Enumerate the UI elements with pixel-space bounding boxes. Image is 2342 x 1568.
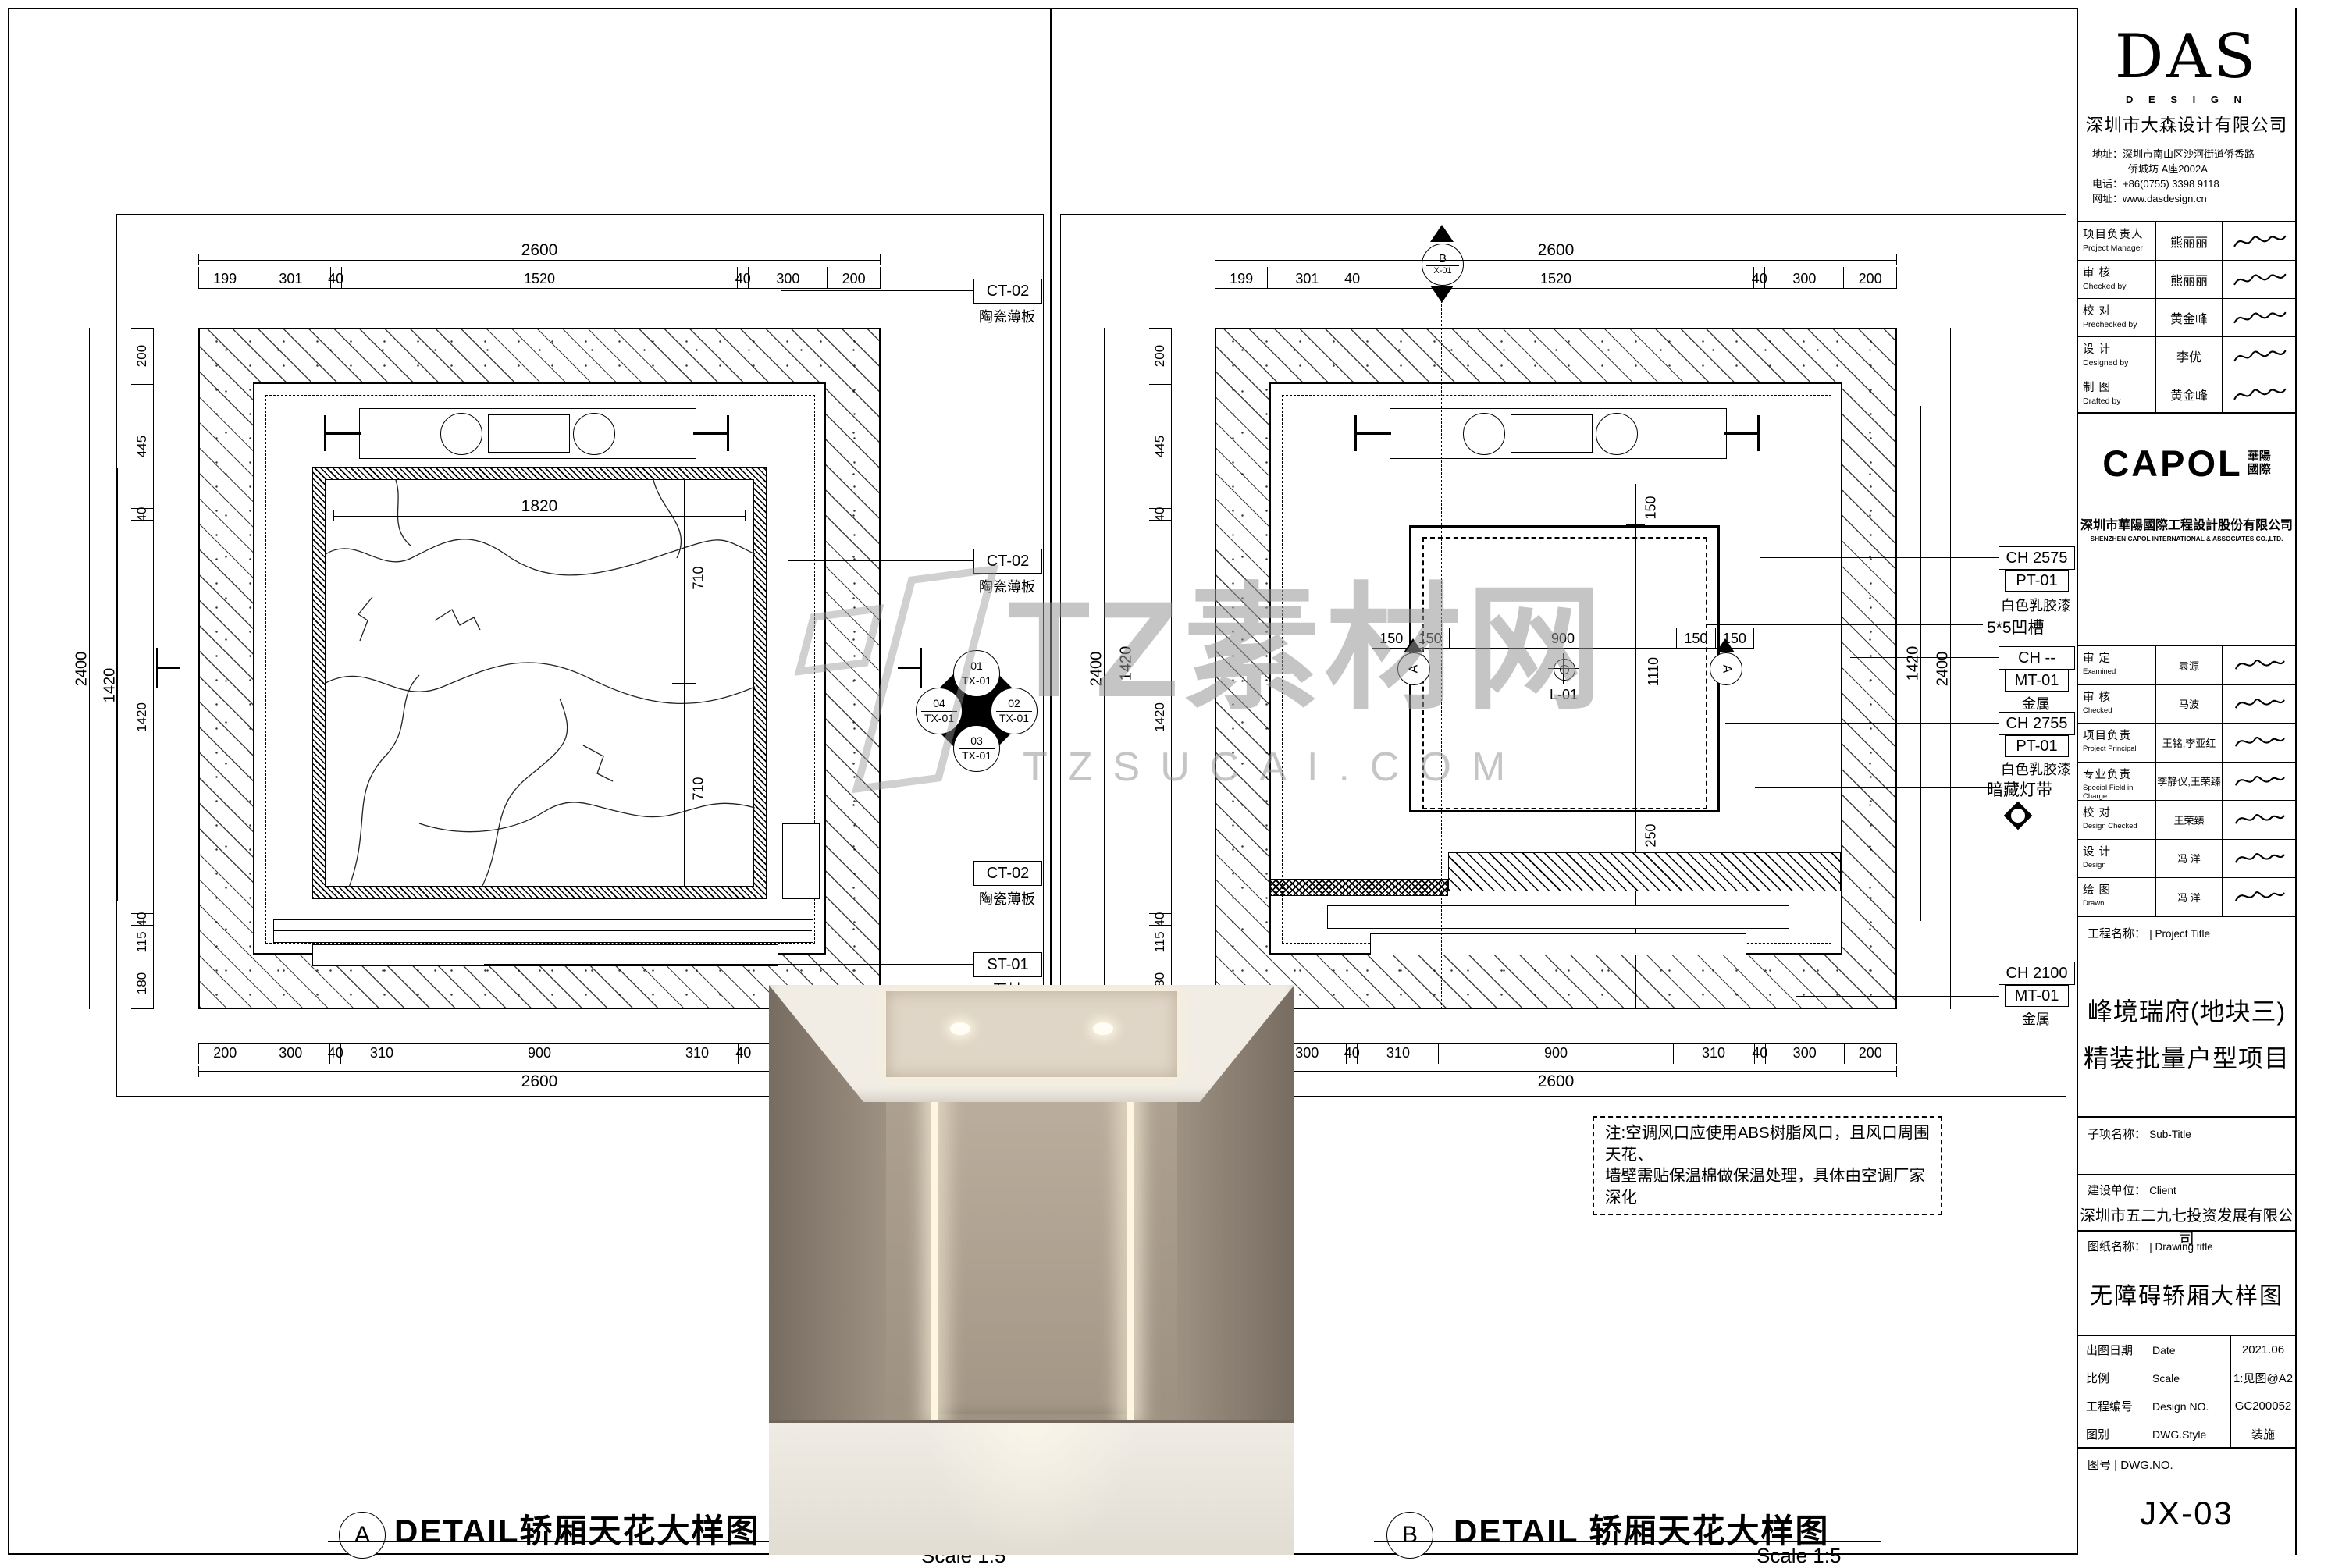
b-dim-bottom: 250: [1643, 823, 1660, 847]
signature-row: 设 计Design 冯 洋: [2078, 840, 2295, 879]
dim-cell: 301: [1267, 267, 1346, 288]
role-en: Drawn: [2083, 899, 2152, 908]
signature-table-capol: 审 定Examined 袁源 审 核Checked 马波 项目负责Project…: [2078, 646, 2295, 917]
das-logo: DAS: [2078, 22, 2295, 92]
dim-cell: 900: [422, 1044, 656, 1064]
note-line-2: 墙壁需贴保温棉做保温处理，具体由空调厂家深化: [1605, 1165, 1933, 1208]
dim-cell: 1520: [341, 267, 737, 288]
capol-logo-cn-2: 國際: [2248, 464, 2271, 477]
dim-text: 310: [1702, 1045, 1725, 1061]
tag-ch: CH 2575: [2006, 549, 2068, 567]
a-fixture-t-right: [693, 432, 728, 435]
role-cn: 设 计: [2083, 340, 2152, 357]
b-dim-overall-height-left: 2400: [1088, 328, 1105, 1009]
dim-text: 2600: [1538, 240, 1575, 260]
signature-row: 项目负责人Project Manager 熊丽丽: [2078, 222, 2295, 261]
person-name: 熊丽丽: [2156, 222, 2223, 260]
role-cn: 专业负责: [2083, 766, 2152, 782]
dim-text: 1520: [524, 271, 555, 287]
a-finish-diamond: 01TX-01 02TX-01 03TX-01 04TX-01: [917, 652, 1034, 769]
client-block: 建设单位： Client 深圳市五二九七投资发展有限公司: [2078, 1175, 2295, 1232]
elevator-photo: [769, 985, 1294, 1555]
dim-text: 150: [1379, 631, 1403, 647]
das-address-1: 地址：深圳市南山区沙河街道侨香路: [2092, 148, 2295, 162]
dim-text: 300: [279, 1045, 302, 1061]
dim-cell: 40: [737, 267, 748, 288]
role-en: Project Principal: [2083, 745, 2152, 753]
project-label-cn: 工程名称：: [2088, 927, 2146, 940]
role-en: Drafted by: [2083, 396, 2152, 406]
dim-cell: 200: [1843, 267, 1897, 288]
b-section-right-triangle: [1716, 638, 1735, 652]
person-name: 袁源: [2156, 646, 2223, 684]
dim-cell: 310: [340, 1044, 422, 1064]
meta-row: 出图日期 Date 2021.06: [2078, 1336, 2295, 1364]
b-leader-1: [1760, 557, 1999, 558]
section-letter: A: [1719, 665, 1733, 674]
tag-code: PT-01: [2016, 572, 2057, 590]
meta-label-en: Scale: [2152, 1372, 2230, 1385]
dim-text: 1420: [1118, 646, 1134, 681]
a-side-mark-left-stem: [158, 667, 180, 669]
b-leader-5: [1755, 787, 1999, 788]
meta-row: 比例 Scale 1:见图@A2: [2078, 1364, 2295, 1392]
capol-logo-cn-1: 華陽: [2248, 450, 2271, 464]
subtitle-label-cn: 子项名称：: [2088, 1128, 2146, 1141]
a-leader-2: [788, 560, 973, 561]
drawing-title-name: 无障碍轿厢大样图: [2078, 1278, 2295, 1310]
role-cn: 制 图: [2083, 379, 2152, 395]
dim-text: 1820: [521, 496, 558, 516]
dim-cell: 40: [131, 913, 153, 925]
signature-scribble: [2223, 646, 2295, 684]
signature-row: 校 对Design Checked 王荣臻: [2078, 801, 2295, 840]
b-tag-5-text: 暗藏灯带: [1987, 777, 2052, 801]
a-fixture-lamp-left: [440, 413, 482, 455]
meta-label-cn: 出图日期: [2078, 1342, 2152, 1358]
tag-ch: CH 2755: [2006, 715, 2068, 733]
title-block: DAS D E S I G N 深圳市大森设计有限公司 地址：深圳市南山区沙河街…: [2077, 8, 2297, 1555]
title-a-text: DETAIL轿厢天花大样图: [394, 1505, 760, 1552]
person-name: 冯 洋: [2156, 878, 2223, 916]
dim-cell: 445: [1149, 384, 1171, 508]
role-cn: 审 核: [2083, 688, 2152, 705]
photo-downlight-1: [950, 1022, 970, 1035]
b-tag-4-code: PT-01: [2005, 735, 2069, 757]
b-section-right-mark: A: [1710, 652, 1742, 685]
photo-light-strip-right: [1127, 1079, 1134, 1422]
photo-skirting-line: [769, 1420, 1294, 1423]
finish-num: 04: [933, 698, 945, 709]
dim-text: 1420: [101, 667, 117, 702]
b-leader-6: [1796, 996, 1999, 997]
meta-value: GC200052: [2230, 1392, 2295, 1420]
a-fixture-t-right-cap: [727, 415, 729, 451]
note-line-1: 注:空调风口应使用ABS树脂风口，且风口周围天花、: [1605, 1122, 1933, 1165]
dim-cell: 115: [1149, 925, 1171, 958]
signature-scribble: [2223, 724, 2295, 762]
signature-row: 制 图Drafted by 黄金峰: [2078, 375, 2295, 414]
client-label-cn: 建设单位：: [2088, 1184, 2146, 1197]
address-label: 地址：: [2092, 148, 2123, 160]
dim-cell: 310: [1357, 1044, 1438, 1064]
das-address-2: 侨城坊 A座2002A: [2128, 162, 2295, 177]
b-fixture-t-right-cap: [1757, 415, 1760, 451]
a-bottom-bar-1: [273, 919, 813, 943]
dim-text: 310: [370, 1045, 393, 1061]
dim-text: 1420: [1152, 702, 1168, 732]
meta-table: 出图日期 Date 2021.06 比例 Scale 1:见图@A2 工程编号 …: [2078, 1336, 2295, 1449]
role-en: Design: [2083, 861, 2152, 869]
photo-ceiling-coffer: [886, 991, 1177, 1077]
meta-label-cn: 图别: [2078, 1426, 2152, 1442]
a-fixture-center: [488, 414, 570, 453]
finish-01: 01TX-01: [953, 650, 1000, 697]
a-leader-3: [546, 873, 973, 873]
phone-value: +86(0755) 3398 9118: [2123, 178, 2219, 190]
tag-code: PT-01: [2016, 738, 2057, 756]
role-cn: 审 定: [2083, 649, 2152, 666]
b-dim-overall-top: 2600: [1215, 239, 1897, 261]
dim-cell: 40: [1149, 508, 1171, 520]
a-leader-4: [484, 964, 973, 965]
dim-cell: 300: [1764, 267, 1843, 288]
dim-cell: 199: [1215, 267, 1267, 288]
b-fixture-t-left: [1356, 432, 1391, 435]
b-downlight-inner: [1560, 665, 1569, 674]
meta-value: 1:见图@A2: [2230, 1364, 2295, 1392]
dim-text: 200: [1859, 271, 1882, 287]
dim-text: 900: [1551, 631, 1575, 647]
a-tag-4-code: ST-01: [973, 952, 1042, 977]
b-dim-chain-left: 20044540142040115180: [1149, 328, 1172, 1009]
a-dim-710-bottom: 710: [691, 777, 707, 800]
dim-text: 445: [1152, 436, 1168, 457]
signature-row: 专业负责Special Field in Charge 李静仪,王荣臻: [2078, 763, 2295, 802]
signature-row: 校 对Prechecked by 黄金峰: [2078, 299, 2295, 337]
meta-value: 2021.06: [2230, 1336, 2295, 1364]
b-bottom-bar-2: [1370, 933, 1746, 955]
dim-cell: 300: [748, 267, 827, 288]
role-en: Prechecked by: [2083, 320, 2152, 329]
finish-code: TX-01: [962, 675, 991, 687]
capol-company-en: SHENZHEN CAPOL INTERNATIONAL & ASSOCIATE…: [2078, 535, 2295, 542]
a-dim-overall-top: 2600: [198, 239, 881, 261]
person-name: 王荣臻: [2156, 801, 2223, 839]
b-fixture-lamp-right: [1596, 413, 1638, 455]
dim-text: 900: [1544, 1045, 1568, 1061]
person-name: 李优: [2156, 337, 2223, 375]
b-leader-4: [1725, 723, 1999, 724]
dim-cell: 1420: [131, 520, 153, 913]
signature-row: 项目负责Project Principal 王铭,李亚红: [2078, 724, 2295, 763]
dim-cell: 40: [329, 1044, 340, 1064]
a-tag-2-code: CT-02: [973, 549, 1042, 574]
a-tag-1-desc: 陶瓷薄板: [979, 306, 1035, 326]
a-fixture-t-left-cap: [324, 415, 326, 451]
dim-text: 310: [1386, 1045, 1410, 1061]
dim-cell: 1520: [1358, 267, 1753, 288]
role-en: Examined: [2083, 667, 2152, 676]
role-cn: 审 核: [2083, 264, 2152, 280]
a-bottom-bar-2: [312, 944, 778, 966]
a-fixture-lamp-right: [573, 413, 615, 455]
dim-text: 445: [134, 436, 150, 457]
dim-text: 900: [528, 1045, 551, 1061]
signature-scribble: [2223, 375, 2295, 413]
b-bottom-dense-band: [1269, 879, 1448, 896]
b-bottom-hatch-strip: [1448, 852, 1841, 891]
b-dim-top: 150: [1643, 496, 1660, 519]
mark-letter: B: [1402, 1522, 1418, 1548]
b-tag-1-ch: CH 2575: [1999, 546, 2075, 570]
person-name: 冯 洋: [2156, 840, 2223, 878]
dim-cell: 40: [1346, 1044, 1357, 1064]
meta-label-en: Date: [2152, 1344, 2230, 1356]
a-side-mark-right-stem: [898, 667, 920, 669]
b-dim-height: 1110: [1646, 657, 1662, 686]
person-name: 马波: [2156, 685, 2223, 724]
capol-logo: CAPOL: [2102, 442, 2243, 485]
a-dim-overall-height: 2400: [73, 328, 90, 1009]
a-dim-chain-left: 20044540142040115180: [131, 328, 154, 1009]
drawing-title-label-cn: 图纸名称：: [2088, 1240, 2146, 1253]
das-sub: D E S I G N: [2078, 94, 2295, 105]
dim-text: 2600: [521, 240, 558, 260]
dim-cell: 150: [1676, 628, 1714, 648]
dim-cell: 40: [738, 1044, 749, 1064]
dim-cell: 200: [198, 1044, 251, 1064]
finish-04: 04TX-01: [916, 688, 963, 734]
dim-text: 2400: [1088, 651, 1104, 686]
dim-cell: 1420: [1149, 520, 1171, 913]
dim-cell: 300: [1765, 1044, 1844, 1064]
title-b-scale: Scale 1:5: [1756, 1544, 1841, 1568]
b-fixture-t-left-cap: [1354, 415, 1357, 451]
b-leader-3: [1850, 657, 1999, 658]
a-bottom-bar-1-line: [273, 930, 812, 931]
role-en: Checked by: [2083, 282, 2152, 291]
dim-text: 300: [1295, 1045, 1319, 1061]
role-en: Special Field in Charge: [2083, 784, 2152, 801]
signature-scribble: [2223, 878, 2295, 916]
photo-downlight-2: [1093, 1022, 1113, 1035]
dim-cell: 199: [198, 267, 251, 288]
b-dim-inner-height-right: 1420: [1905, 406, 1921, 921]
b-tag-1-code: PT-01: [2005, 570, 2069, 592]
dim-cell: 200: [1149, 328, 1171, 384]
meta-label-cn: 工程编号: [2078, 1398, 2152, 1414]
dim-text: 301: [1295, 271, 1319, 287]
b-tag-1-desc: 白色乳胶漆: [2001, 595, 2071, 615]
dim-cell: 200: [827, 267, 881, 288]
dim-cell: 200: [131, 328, 153, 384]
b-vert-tick-2: [1626, 812, 1645, 812]
b-dim-chain-mid: 150150900150150: [1372, 628, 1754, 649]
dim-cell: 180: [131, 958, 153, 1009]
signature-row: 审 核Checked 马波: [2078, 685, 2295, 724]
signature-table-das: 项目负责人Project Manager 熊丽丽 审 核Checked by 熊…: [2078, 222, 2295, 414]
a-tag-3-desc: 陶瓷薄板: [979, 888, 1035, 908]
person-name: 李静仪,王荣臻: [2156, 763, 2223, 801]
b-fixture-lamp-left: [1463, 413, 1505, 455]
dim-text: 2400: [1934, 651, 1950, 686]
dim-text: 1420: [1905, 646, 1920, 681]
finish-code: TX-01: [999, 713, 1029, 724]
address-value: 深圳市南山区沙河街道侨香路: [2123, 148, 2255, 160]
b-section-left-mark: A: [1397, 652, 1430, 685]
dim-text: 115: [1152, 931, 1168, 952]
title-b-underline: [1374, 1541, 1881, 1542]
title-a-mark: A: [339, 1512, 386, 1559]
dim-cell: 40: [1754, 1044, 1765, 1064]
das-company: 深圳市大森设计有限公司: [2078, 112, 2295, 137]
a-panel-split-tick: [672, 683, 696, 684]
b-downlight-cross-h: [1548, 668, 1579, 669]
title-b-mark: B: [1386, 1512, 1433, 1559]
hvac-note: 注:空调风口应使用ABS树脂风口，且风口周围天花、 墙壁需贴保温棉做保温处理，具…: [1593, 1116, 1942, 1215]
b-fixture-t-right: [1724, 432, 1759, 435]
tag-code: MT-01: [2015, 672, 2059, 690]
signature-row: 审 定Examined 袁源: [2078, 646, 2295, 685]
person-name: 王铭,李亚红: [2156, 724, 2223, 762]
tag-code: CT-02: [987, 283, 1029, 300]
dim-cell: 40: [1753, 267, 1764, 288]
dim-text: 200: [213, 1045, 237, 1061]
a-tag-1-code: CT-02: [973, 279, 1042, 304]
dim-text: 300: [1792, 271, 1816, 287]
meta-label-en: DWG.Style: [2152, 1428, 2230, 1441]
b-tag-6-desc: 金属: [2022, 1008, 2050, 1029]
dim-cell: 300: [251, 1044, 329, 1064]
das-phone: 电话：+86(0755) 3398 9118: [2092, 177, 2295, 192]
b-vert-tick-1: [1626, 524, 1645, 525]
tag-ch: CH 2100: [2006, 965, 2068, 983]
photo-back-center-panel: [939, 1086, 1127, 1414]
a-leader-1: [781, 290, 973, 291]
dim-text: 2600: [521, 1072, 558, 1091]
signature-scribble: [2223, 685, 2295, 724]
meta-row: 工程编号 Design NO. GC200052: [2078, 1392, 2295, 1420]
mark-letter: A: [354, 1522, 370, 1548]
dim-text: 300: [1793, 1045, 1817, 1061]
signature-scribble: [2223, 337, 2295, 375]
b-tag-3-ch: CH --: [1999, 646, 2075, 670]
role-cn: 设 计: [2083, 843, 2152, 859]
b-leader-2: [1706, 624, 1983, 625]
dim-cell: 900: [1438, 1044, 1672, 1064]
role-cn: 校 对: [2083, 302, 2152, 318]
dim-cell: 310: [657, 1044, 738, 1064]
b-dim-overall-bottom: 2600: [1215, 1071, 1897, 1092]
signature-scribble: [2223, 801, 2295, 839]
a-panel-split-line: [684, 480, 685, 887]
b-section-centerline: [1441, 285, 1442, 1009]
dim-text: 2600: [1538, 1072, 1575, 1091]
finish-num: 01: [970, 660, 983, 672]
a-dim-710-top: 710: [691, 566, 707, 589]
signature-scribble: [2223, 299, 2295, 336]
meta-value: 装施: [2230, 1420, 2295, 1448]
marble-veins: [326, 480, 755, 887]
dim-text: 200: [134, 345, 150, 367]
dim-text: 200: [1859, 1045, 1882, 1061]
dim-text: 180: [134, 972, 150, 994]
capol-company: 深圳市華陽國際工程設計股份有限公司: [2078, 514, 2295, 533]
a-small-box: [782, 823, 820, 899]
dim-text: 301: [279, 271, 302, 287]
project-title-line-2: 精装批量户型项目: [2078, 1039, 2295, 1075]
b-downlight-label: L-01: [1550, 687, 1578, 703]
dim-text: 150: [1684, 631, 1707, 647]
meta-row: 图别 DWG.Style 装施: [2078, 1420, 2295, 1449]
das-block: DAS D E S I G N 深圳市大森设计有限公司 地址：深圳市南山区沙河街…: [2078, 8, 2295, 222]
signature-scribble: [2223, 763, 2295, 801]
tag-code: ST-01: [987, 956, 1028, 974]
a-tag-2-desc: 陶瓷薄板: [979, 576, 1035, 596]
dim-cell: 310: [1673, 1044, 1754, 1064]
b-tag-4-ch: CH 2755: [1999, 712, 2075, 735]
dwgno-label: 图号 | DWG.NO.: [2088, 1456, 2295, 1473]
role-cn: 项目负责人: [2083, 226, 2152, 242]
tag-code: CT-02: [987, 865, 1029, 883]
web-value: www.dasdesign.cn: [2123, 193, 2207, 204]
dwgno-value: JX-03: [2078, 1495, 2295, 1532]
drawing-title-label-en: | Drawing title: [2149, 1241, 2213, 1253]
dim-text: 115: [134, 931, 150, 952]
subtitle-block: 子项名称： Sub-Title: [2078, 1118, 2295, 1175]
section-letter: A: [1407, 665, 1421, 674]
photo-light-strip-left: [931, 1079, 938, 1422]
person-name: 熊丽丽: [2156, 261, 2223, 298]
tag-ch: CH --: [2018, 649, 2055, 667]
person-name: 黄金峰: [2156, 299, 2223, 336]
meta-label-cn: 比例: [2078, 1370, 2152, 1386]
b-dim-chain-top: 19930140152040300200: [1215, 267, 1897, 289]
b-section-left-triangle: [1404, 638, 1422, 652]
a-marble-panel: 1820: [325, 479, 754, 887]
b-tag-6-ch: CH 2100: [1999, 962, 2075, 985]
b-detail-diamond-circle: [2010, 808, 2026, 823]
signature-row: 设 计Designed by 李优: [2078, 337, 2295, 375]
signature-scribble: [2223, 261, 2295, 298]
b-dim-chain-bottom: 2003004031090031040300200: [1215, 1043, 1897, 1064]
role-en: Checked: [2083, 706, 2152, 715]
phone-label: 电话：: [2092, 178, 2123, 190]
meta-label-en: Design NO.: [2152, 1400, 2230, 1413]
dim-cell: 115: [131, 925, 153, 958]
dwgno-block: 图号 | DWG.NO. JX-03: [2078, 1449, 2295, 1555]
finish-code: TX-01: [962, 750, 991, 762]
b-tag-3-code: MT-01: [2005, 670, 2069, 692]
dim-cell: 445: [131, 384, 153, 508]
signature-scribble: [2223, 840, 2295, 878]
drawing-title-block: 图纸名称： | Drawing title 无障碍轿厢大样图: [2078, 1232, 2295, 1336]
b-fixture-center: [1511, 414, 1593, 453]
role-cn: 校 对: [2083, 804, 2152, 820]
signature-row: 绘 图Drawn 冯 洋: [2078, 878, 2295, 917]
web-label: 网址：: [2092, 193, 2123, 204]
finish-02: 02TX-01: [991, 688, 1038, 734]
a-tag-3-code: CT-02: [973, 861, 1042, 886]
client-label-en: Client: [2149, 1185, 2176, 1196]
dim-text: 200: [1152, 345, 1168, 367]
a-fixture-t-left: [326, 432, 361, 435]
capol-block: CAPOL 華陽 國際 深圳市華陽國際工程設計股份有限公司 SHENZHEN C…: [2078, 414, 2295, 646]
role-cn: 项目负责: [2083, 727, 2152, 743]
das-web: 网址：www.dasdesign.cn: [2092, 192, 2295, 207]
dim-cell: 40: [330, 267, 341, 288]
